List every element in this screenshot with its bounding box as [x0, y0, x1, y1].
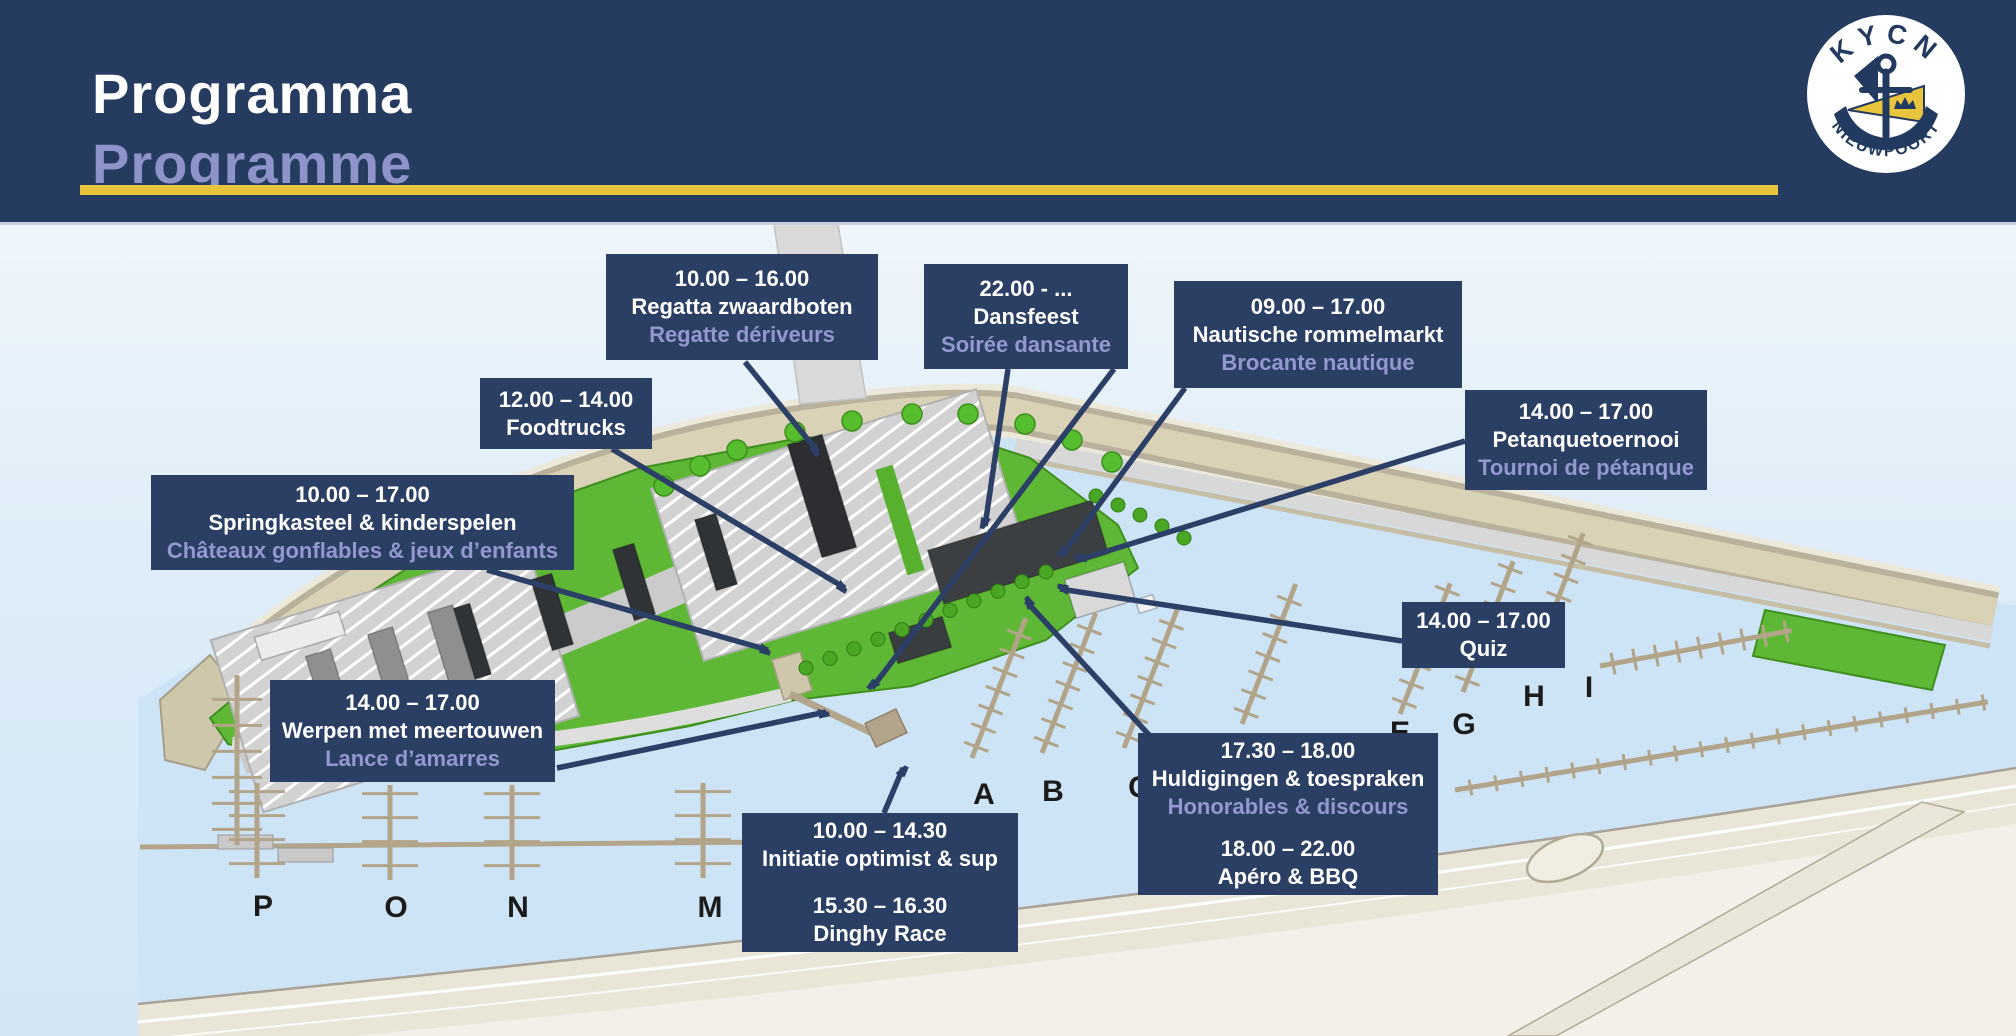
- event-box-regatta: 10.00 – 16.00Regatta zwaardbotenRegatte …: [606, 254, 878, 360]
- event-line: [748, 873, 1012, 892]
- event-line: Nautische rommelmarkt: [1180, 321, 1456, 349]
- event-box-petanque: 14.00 – 17.00PetanquetoernooiTournoi de …: [1465, 390, 1707, 490]
- pier-label-N: N: [507, 891, 529, 924]
- event-line: 17.30 – 18.00: [1144, 737, 1432, 765]
- event-box-huldigingen: 17.30 – 18.00Huldigingen & toesprakenHon…: [1138, 733, 1438, 895]
- event-line: 22.00 - ...: [930, 275, 1122, 303]
- event-line: Honorables & discours: [1144, 793, 1432, 821]
- event-line: Foodtrucks: [486, 414, 646, 442]
- event-line: Regatte dériveurs: [612, 321, 872, 349]
- anchor-logo-icon: KYCN NIEUWPOORT: [1804, 10, 1968, 180]
- event-line: Dinghy Race: [748, 920, 1012, 948]
- slide: ABCEGHIMNOP 10.00 – 16.00Regatta zwaardb…: [0, 0, 2016, 1036]
- event-line: 10.00 – 16.00: [612, 265, 872, 293]
- gold-rule: [80, 185, 1778, 195]
- header-bar: Programma Programme: [0, 0, 2016, 225]
- pier-label-A: A: [973, 778, 995, 811]
- event-line: Initiatie optimist & sup: [748, 845, 1012, 873]
- event-line: Springkasteel & kinderspelen: [157, 509, 568, 537]
- event-box-rommelmarkt: 09.00 – 17.00Nautische rommelmarktBrocan…: [1174, 281, 1462, 388]
- event-line: Tournoi de pétanque: [1471, 454, 1701, 482]
- event-line: 18.00 – 22.00: [1144, 835, 1432, 863]
- pier-label-G: G: [1452, 708, 1475, 741]
- event-box-foodtrucks: 12.00 – 14.00Foodtrucks: [480, 378, 652, 449]
- event-box-dansfeest: 22.00 - ...DansfeestSoirée dansante: [924, 264, 1128, 369]
- event-line: [1144, 821, 1432, 835]
- event-line: 09.00 – 17.00: [1180, 293, 1456, 321]
- kycn-logo: KYCN NIEUWPOORT: [1804, 10, 1968, 180]
- event-box-quiz: 14.00 – 17.00Quiz: [1402, 602, 1565, 668]
- event-line: 14.00 – 17.00: [276, 689, 549, 717]
- event-line: Regatta zwaardboten: [612, 293, 872, 321]
- event-line: Châteaux gonflables & jeux d’enfants: [157, 537, 568, 565]
- event-line: Quiz: [1408, 635, 1559, 663]
- event-line: 14.00 – 17.00: [1408, 607, 1559, 635]
- event-line: Huldigingen & toespraken: [1144, 765, 1432, 793]
- event-line: 10.00 – 17.00: [157, 481, 568, 509]
- event-box-springkasteel: 10.00 – 17.00Springkasteel & kinderspele…: [151, 475, 574, 570]
- page-title: Programma: [92, 66, 412, 122]
- pier-label-I: I: [1585, 671, 1593, 704]
- event-box-initiatie: 10.00 – 14.30Initiatie optimist & sup15.…: [742, 813, 1018, 952]
- event-line: Brocante nautique: [1180, 349, 1456, 377]
- pier-label-B: B: [1042, 775, 1064, 808]
- event-line: Soirée dansante: [930, 331, 1122, 359]
- pier-label-H: H: [1523, 680, 1545, 713]
- pier-label-M: M: [698, 891, 723, 924]
- event-line: Petanquetoernooi: [1471, 426, 1701, 454]
- event-box-werpen: 14.00 – 17.00Werpen met meertouwenLance …: [270, 680, 555, 782]
- event-line: Lance d’amarres: [276, 745, 549, 773]
- pier-label-P: P: [253, 890, 273, 923]
- event-line: 10.00 – 14.30: [748, 817, 1012, 845]
- event-line: 14.00 – 17.00: [1471, 398, 1701, 426]
- event-line: 15.30 – 16.30: [748, 892, 1012, 920]
- event-line: Apéro & BBQ: [1144, 863, 1432, 891]
- page-subtitle: Programme: [92, 136, 412, 192]
- event-line: Werpen met meertouwen: [276, 717, 549, 745]
- event-line: 12.00 – 14.00: [486, 386, 646, 414]
- pier-label-O: O: [384, 891, 407, 924]
- event-line: Dansfeest: [930, 303, 1122, 331]
